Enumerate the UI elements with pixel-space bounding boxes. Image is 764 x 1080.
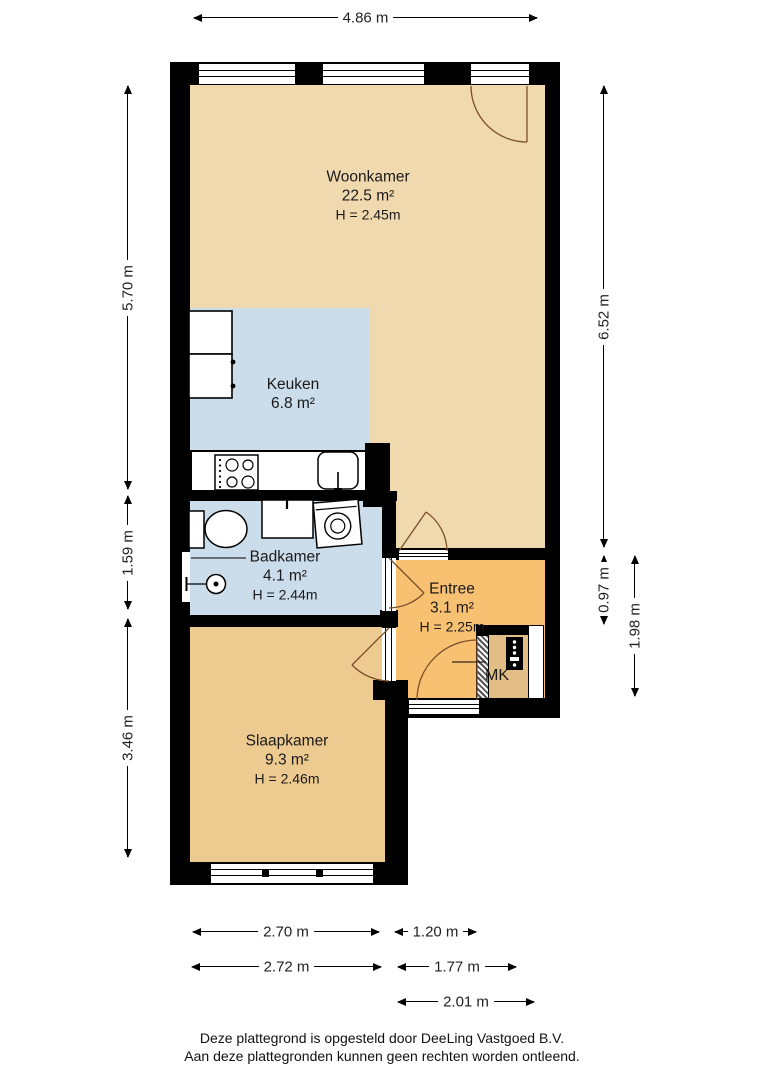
dimension-right-entree-total: 1.98 m — [628, 555, 642, 697]
room-area: 6.8 m² — [267, 395, 320, 414]
room-area: 4.1 m² — [250, 567, 321, 586]
floorplan-canvas: Woonkamer 22.5 m² H = 2.45m Keuken 6.8 m… — [0, 0, 764, 1080]
woonkamer-entree-threshold — [398, 550, 449, 560]
dimension-bottom-slaapkamer-inner: 2.70 m — [192, 925, 380, 939]
room-label-woonkamer: Woonkamer 22.5 m² H = 2.45m — [326, 169, 409, 224]
wall-right — [545, 62, 560, 718]
room-ceiling: H = 2.44m — [250, 586, 321, 603]
room-ceiling: H = 2.46m — [246, 770, 329, 787]
shaft — [528, 625, 544, 699]
window-top-middle — [322, 64, 425, 84]
dimension-left-badkamer: 1.59 m — [121, 495, 135, 610]
room-area: 9.3 m² — [246, 751, 329, 770]
wall-corner-entree — [373, 680, 408, 700]
footer-disclaimer: Deze plattegrond is opgesteld door DeeLi… — [0, 1030, 764, 1065]
room-name: Keuken — [267, 376, 320, 395]
dimension-right-entree-upper: 0.97 m — [597, 555, 611, 625]
room-area: 22.5 m² — [326, 187, 409, 206]
room-label-badkamer: Badkamer 4.1 m² H = 2.44m — [250, 549, 321, 604]
wall-badkamer-bottom — [170, 615, 396, 627]
room-name: Badkamer — [250, 549, 321, 568]
room-area: 3.1 m² — [420, 599, 485, 618]
room-label-keuken: Keuken 6.8 m² — [267, 376, 320, 414]
room-ceiling: H = 2.25m — [420, 618, 485, 635]
dimension-bottom-slaapkamer-outer: 2.72 m — [191, 960, 382, 974]
footer-line1: Deze plattegrond is opgesteld door DeeLi… — [0, 1030, 764, 1048]
wall-left — [170, 62, 190, 885]
room-ceiling: H = 2.45m — [326, 206, 409, 223]
window-top-left — [198, 64, 296, 84]
room-name: Woonkamer — [326, 169, 409, 188]
slaapkamer-door-opening — [382, 627, 396, 682]
window-slaapkamer — [210, 864, 374, 883]
room-label-entree: Entree 3.1 m² H = 2.25m — [420, 581, 485, 636]
dimension-top-width: 4.86 m — [193, 11, 538, 25]
badkamer-door-opening — [382, 557, 396, 612]
room-label-meterkast: MK — [485, 667, 509, 685]
window-mullion — [316, 869, 323, 877]
room-name: Entree — [420, 581, 485, 600]
dimension-right-total: 6.52 m — [597, 85, 611, 548]
footer-line2: Aan deze plattegronden kunnen geen recht… — [0, 1048, 764, 1066]
dimension-bottom-entree-inner: 1.20 m — [394, 925, 477, 939]
shower-recess — [182, 552, 190, 602]
window-mullion — [262, 869, 269, 877]
dimension-left-slaapkamer: 3.46 m — [121, 618, 135, 858]
dimension-bottom-entree-mid: 1.77 m — [397, 960, 517, 974]
room-label-slaapkamer: Slaapkamer 9.3 m² H = 2.46m — [246, 733, 329, 788]
room-name: Slaapkamer — [246, 733, 329, 752]
balcony-door-glazing — [470, 64, 530, 84]
front-door-threshold — [408, 700, 480, 714]
dimension-bottom-entree-outer: 2.01 m — [397, 995, 535, 1009]
kitchen-counter — [190, 450, 368, 492]
dimension-left-total: 5.70 m — [121, 85, 135, 490]
